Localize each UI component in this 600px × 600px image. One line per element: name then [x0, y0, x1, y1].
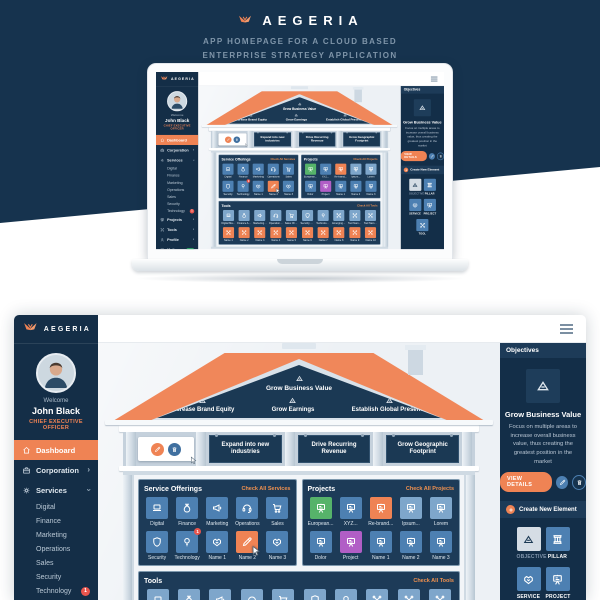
dashboard: AEGERIAWelcomeJohn BlackCHIEF EXECUTIVE … [156, 72, 444, 249]
tile-label: Name 1 [221, 239, 235, 242]
create-element-pillar[interactable]: PILLAR [546, 527, 570, 560]
sidebar-subitem-security[interactable]: Security [14, 570, 98, 584]
welcome-text: Welcome [18, 398, 94, 404]
sidebar-subitem-sales[interactable]: Sales [156, 193, 198, 200]
element-label: PILLAR [424, 193, 436, 196]
services-check-all-link[interactable]: Check All Services [241, 486, 290, 492]
pillar-row: Increase Brand EquityGrow EarningsEstabl… [171, 396, 427, 413]
projects-tile-european[interactable] [305, 164, 316, 175]
services-item: Security [144, 531, 170, 561]
board-icon [307, 183, 313, 189]
tools-tile-marketing-analytics[interactable] [254, 210, 265, 221]
sidebar-subitem-digital[interactable]: Digital [156, 165, 198, 172]
strategy-sign-grow-geographic-footprint[interactable]: Grow Geographic Footprint [343, 132, 380, 146]
pillar-label: Grow Earnings [286, 118, 307, 121]
services-panel: Service OfferingsCheck All ServicesDigit… [218, 155, 298, 199]
create-element-service[interactable]: SERVICE [409, 199, 421, 216]
services-tile-digital[interactable] [146, 497, 168, 519]
board-icon [345, 502, 357, 514]
pillar-label: Grow Earnings [272, 407, 315, 413]
delete-objective-button[interactable] [572, 475, 586, 490]
headset-icon [246, 594, 258, 600]
projects-item: XYZ... [319, 164, 332, 179]
services-tile-technology[interactable]: 1 [176, 531, 198, 553]
projects-grid: European...XYZ...Re-brand...Ipsum...Lore… [304, 164, 378, 196]
tools-panel-header: ToolsCheck All Tools [221, 203, 377, 208]
sidebar-item-corporation[interactable]: Corporation› [14, 460, 98, 480]
cart-icon [289, 212, 295, 218]
tile-label: Finance [174, 521, 200, 527]
services-tile-name-2[interactable] [268, 181, 279, 192]
delete-objective-button[interactable] [437, 153, 444, 161]
tools-tile-name-10[interactable] [365, 227, 376, 238]
tools-item: Name 9 [348, 227, 362, 242]
laptop-icon [152, 594, 164, 600]
element-label: PILLAR [546, 554, 570, 560]
tools-tile-name-1[interactable] [223, 227, 234, 238]
column [382, 131, 387, 148]
laptop-mockup: AEGERIAWelcomeJohn BlackCHIEF EXECUTIVE … [132, 63, 468, 283]
tools-icon [434, 594, 446, 600]
sidebar: AEGERIAWelcomeJohn BlackCHIEF EXECUTIVE … [156, 72, 198, 249]
services-item: Marketing [204, 497, 230, 527]
tools-tile-tool-name-1[interactable] [398, 589, 420, 600]
services-tile-operations[interactable] [236, 497, 258, 519]
pillar-grow-earnings[interactable]: Grow Earnings [272, 396, 315, 413]
projects-tile-re-brand[interactable] [335, 164, 346, 175]
menu-toggle[interactable] [560, 322, 573, 336]
tools-tile-security-physical[interactable] [302, 210, 313, 221]
tools-icon [241, 230, 247, 236]
projects-tile-dolor[interactable] [310, 531, 332, 553]
services-tile-finance[interactable] [176, 497, 198, 519]
tools-icon [352, 212, 358, 218]
tools-icon [403, 594, 415, 600]
projects-tile-xyz[interactable] [320, 164, 331, 175]
tools-item: Tool Name 2 [427, 589, 454, 600]
user-name: John Black [158, 118, 196, 123]
tools-tile-name-2[interactable] [239, 227, 250, 238]
tile-label: Security Physical [300, 222, 314, 225]
avatar[interactable] [36, 353, 76, 393]
create-new-element-label: Create New Element [410, 169, 439, 172]
projects-item: Name 3 [428, 531, 454, 561]
sidebar-subitem-finance[interactable]: Finance [156, 172, 198, 179]
delete-button[interactable] [168, 443, 181, 456]
sidebar-item-services[interactable]: Services› [156, 155, 198, 165]
roof: Grow Business ValueIncrease Brand Equity… [113, 347, 485, 425]
services-item: Digital [144, 497, 170, 527]
bulb-icon [181, 536, 193, 548]
projects-check-all-link[interactable]: Check All Projects [406, 486, 454, 492]
board-icon [435, 502, 447, 514]
tools-tile-finance-accounting[interactable] [239, 210, 250, 221]
column [212, 131, 217, 148]
triangle-icon [294, 113, 299, 118]
sidebar-subitem-operations[interactable]: Operations [156, 186, 198, 193]
tools-tile-digital-marketing[interactable] [147, 589, 169, 600]
lower-floor: Service OfferingsCheck All ServicesDigit… [211, 151, 388, 249]
tools-tile-emerging-technology[interactable] [366, 589, 388, 600]
edit-objective-button[interactable] [556, 476, 568, 489]
gear-icon [22, 486, 31, 495]
design-presentation: AEGERIA APP HOMEPAGE FOR A CLOUD BASED E… [0, 0, 600, 600]
element-label: PROJECT [546, 594, 570, 600]
projects-tile-name-1[interactable] [370, 531, 392, 553]
chimney [354, 87, 362, 102]
projects-panel-title: Projects [304, 158, 318, 162]
sidebar-item-dashboard[interactable]: Dashboard [14, 440, 98, 460]
projects-tile-lorem[interactable] [430, 497, 452, 519]
tools-item: Marketing Analytics [207, 589, 234, 600]
services-panel-title: Service Offerings [221, 158, 250, 162]
sidebar-subitem-label: Security [36, 574, 61, 581]
person-icon [160, 237, 165, 242]
tools-tile-tool-name-2[interactable] [429, 589, 451, 600]
tile-label: Name 7 [316, 239, 330, 242]
projects-tile-ipsum[interactable] [350, 164, 361, 175]
projects-tile-dolor[interactable] [305, 181, 316, 192]
edit-objective-button[interactable] [429, 153, 435, 160]
user-title: CHIEF EXECUTIVE OFFICER [158, 124, 196, 130]
strategy-sign-grow-geographic-footprint[interactable]: Grow Geographic Footprint [386, 435, 459, 463]
board-icon [345, 536, 357, 548]
tools-icon [336, 212, 342, 218]
handshake-icon [271, 536, 283, 548]
services-item: Name 1 [252, 181, 265, 196]
element-label: OBJECTIVE [409, 193, 421, 196]
element-tile [424, 179, 436, 191]
services-tile-finance[interactable] [238, 164, 249, 175]
pillar-label: Establish Global Presence [352, 407, 427, 413]
pencil-icon [226, 138, 230, 142]
projects-item: Ipsum... [349, 164, 362, 179]
view-details-button[interactable]: VIEW DETAILS [500, 472, 552, 492]
services-tile-name-3[interactable] [283, 181, 294, 192]
element-tile [546, 567, 570, 591]
sidebar-subitem-security[interactable]: Security [156, 200, 198, 207]
tile-label: Name 8 [332, 239, 346, 242]
pillar-row: Increase Brand EquityGrow EarningsEstabl… [235, 113, 364, 122]
tile-label: European... [308, 521, 334, 527]
tools-tile-sales-channel[interactable] [286, 210, 297, 221]
tools-tile-finance-accounting[interactable] [178, 589, 200, 600]
plus-icon [404, 169, 407, 172]
services-panel-header: Service OfferingsCheck All Services [144, 484, 291, 494]
tools-tile-name-6[interactable] [302, 227, 313, 238]
sidebar-item-projects[interactable]: Projects› [156, 214, 198, 224]
projects-tile-project[interactable] [320, 181, 331, 192]
column-icon [551, 533, 564, 546]
column [126, 432, 136, 466]
services-tile-name-3[interactable] [266, 531, 288, 553]
services-panel: Service OfferingsCheck All ServicesDigit… [138, 479, 297, 566]
tools-item: Name 3 [253, 227, 267, 242]
bulb-icon [240, 183, 246, 189]
projects-tile-name-2[interactable] [400, 531, 422, 553]
tools-tile-tool-name-2[interactable] [365, 210, 376, 221]
sidebar-item-corporation[interactable]: Corporation› [156, 145, 198, 155]
projects-item: Name 2 [398, 531, 424, 561]
tile-label: Operations Facilities [269, 222, 283, 225]
triangle-icon [522, 533, 535, 546]
tools-tile-tool-name-1[interactable] [349, 210, 360, 221]
projects-item: Ipsum... [398, 497, 424, 527]
top-bar [198, 72, 444, 86]
tools-icon [419, 222, 426, 229]
tools-tile-name-4[interactable] [270, 227, 281, 238]
create-new-element-button[interactable]: Create New Element [401, 166, 444, 175]
projects-tile-name-1[interactable] [335, 181, 346, 192]
services-item: Finance [174, 497, 200, 527]
create-element-objective[interactable]: OBJECTIVE [409, 179, 421, 196]
element-tile [424, 199, 436, 211]
tools-item: Emerging Technology [364, 589, 391, 600]
projects-check-all-link[interactable]: Check All Projects [353, 158, 377, 161]
services-tile-marketing[interactable] [206, 497, 228, 519]
services-item: 1Technology [237, 181, 250, 196]
sidebar-subitem-marketing[interactable]: Marketing [14, 528, 98, 542]
top-bar [98, 315, 586, 343]
tools-item: Operations Facilities [269, 210, 283, 225]
home-icon [22, 446, 31, 455]
sidebar-item-label: Dashboard [167, 138, 187, 143]
element-label: TOOL [416, 233, 428, 236]
trash-icon [576, 479, 583, 486]
create-element-pillar[interactable]: PILLAR [424, 179, 436, 196]
sidebar-subitem-label: Operations [36, 546, 70, 553]
tools-tile-operations-facilities[interactable] [241, 589, 263, 600]
create-element-objective[interactable]: OBJECTIVE [517, 527, 541, 560]
tools-icon [352, 230, 358, 236]
element-tile [517, 567, 541, 591]
moneybag-icon [181, 502, 193, 514]
board-icon [375, 536, 387, 548]
tile-label: Tool Name 2 [364, 222, 378, 225]
sidebar-subitem-technology[interactable]: Technology1 [156, 207, 198, 214]
services-tile-sales[interactable] [283, 164, 294, 175]
notification-badge: 1 [194, 528, 201, 535]
sidebar-item-tools[interactable]: Tools› [156, 225, 198, 235]
sidebar-subitem-marketing[interactable]: Marketing [156, 179, 198, 186]
objective-name: Grow Business Value [500, 410, 586, 419]
cart-icon [271, 502, 283, 514]
sidebar-item-label: Corporation [36, 466, 79, 475]
services-tile-technology[interactable]: 1 [238, 181, 249, 192]
tools-panel: ToolsCheck All ToolsDigital MarketingFin… [138, 571, 460, 600]
services-tile-marketing[interactable] [253, 164, 264, 175]
tools-icon [368, 212, 374, 218]
handshake-icon [522, 573, 535, 586]
create-new-element-button[interactable]: Create New Element [500, 501, 586, 518]
projects-tile-name-2[interactable] [350, 181, 361, 192]
tile-label: Name 6 [300, 239, 314, 242]
app-card: AEGERIAWelcomeJohn BlackCHIEF EXECUTIVE … [14, 315, 586, 600]
tools-item: Emerging Technology [332, 210, 346, 225]
strategy-sign-drive-recurring-revenue[interactable]: Drive Recurring Revenue [298, 435, 371, 463]
projects-tile-lorem[interactable] [365, 164, 376, 175]
triangle-icon [535, 378, 551, 394]
column-icon [426, 182, 433, 189]
board-icon [160, 217, 165, 222]
services-tile-name-2[interactable] [236, 531, 258, 553]
projects-tile-project[interactable] [340, 531, 362, 553]
tools-tile-name-3[interactable] [254, 227, 265, 238]
tile-label: Sales [264, 521, 290, 527]
element-label: OBJECTIVE [517, 554, 541, 560]
roof-fascia [105, 420, 493, 425]
tools-icon [320, 230, 326, 236]
column [292, 131, 297, 148]
upper-floor: Expand into new industriesDrive Recurrin… [211, 131, 388, 148]
cart-icon [286, 166, 292, 172]
chevron-right-icon: › [193, 238, 194, 242]
entablature-beam [119, 425, 479, 432]
services-tile-sales[interactable] [266, 497, 288, 519]
menu-toggle[interactable] [431, 75, 438, 82]
home-icon [160, 138, 165, 143]
tools-panel-header: ToolsCheck All Tools [144, 576, 454, 586]
cursor-icon [244, 143, 249, 148]
tools-tile-name-8[interactable] [333, 227, 344, 238]
projects-tile-name-3[interactable] [430, 531, 452, 553]
create-element-project[interactable]: PROJECT [546, 567, 570, 600]
column [123, 475, 132, 600]
sidebar-item-profile[interactable]: Profile› [156, 235, 198, 245]
laptop-icon [225, 212, 231, 218]
sidebar-subitem-operations[interactable]: Operations [14, 542, 98, 556]
tools-item: Marketing Analytics [253, 210, 267, 225]
sidebar-subitem-finance[interactable]: Finance [14, 514, 98, 528]
pillar-grow-earnings[interactable]: Grow Earnings [286, 113, 307, 122]
projects-item: Name 2 [349, 181, 362, 196]
edit-button[interactable] [225, 136, 232, 143]
services-tile-digital[interactable] [222, 164, 233, 175]
tools-tile-marketing-analytics[interactable] [209, 589, 231, 600]
roof-ridge-cap [282, 343, 316, 349]
services-panel-title: Service Offerings [144, 486, 202, 493]
projects-tile-xyz[interactable] [340, 497, 362, 519]
trash-icon [235, 138, 239, 142]
board-icon [375, 502, 387, 514]
projects-tile-re-brand[interactable] [370, 497, 392, 519]
tile-label: Digital [144, 521, 170, 527]
projects-tile-ipsum[interactable] [400, 497, 422, 519]
cursor-icon [250, 545, 262, 557]
tools-tile-technology-design[interactable] [335, 589, 357, 600]
handshake-icon [286, 183, 292, 189]
services-item: Operations [234, 497, 260, 527]
sidebar-item-dashboard[interactable]: Dashboard [156, 135, 198, 145]
tools-tile-name-7[interactable] [318, 227, 329, 238]
services-tile-security[interactable] [146, 531, 168, 553]
tile-label: Ipsum... [349, 176, 362, 179]
sidebar-subitem-technology[interactable]: Technology1 [14, 584, 98, 598]
tools-check-all-link[interactable]: Check All Tools [357, 204, 377, 207]
tools-tile-emerging-technology[interactable] [333, 210, 344, 221]
strategy-sign-drive-recurring-revenue[interactable]: Drive Recurring Revenue [299, 132, 336, 146]
projects-tile-name-3[interactable] [365, 181, 376, 192]
tools-tile-operations-facilities[interactable] [270, 210, 281, 221]
roof-objective-label: Grow Business Value [283, 107, 316, 111]
pencil-icon [154, 446, 161, 453]
projects-tile-european[interactable] [310, 497, 332, 519]
tools-tile-name-9[interactable] [349, 227, 360, 238]
tile-label: Project [319, 193, 332, 196]
tools-item: Operations Facilities [238, 589, 265, 600]
services-tile-name-1[interactable] [206, 531, 228, 553]
delete-button[interactable] [234, 136, 241, 143]
create-element-service[interactable]: SERVICE [517, 567, 541, 600]
services-tile-security[interactable] [222, 181, 233, 192]
tools-item: Name 5 [285, 227, 299, 242]
tools-grid: Digital MarketingFinance AccountingMarke… [144, 589, 454, 600]
shield-icon [309, 594, 321, 600]
projects-panel: ProjectsCheck All ProjectsEuropean...XYZ… [302, 479, 461, 566]
tools-item: Name 7 [316, 227, 330, 242]
sidebar-item-mail[interactable]: Mail [156, 245, 198, 250]
services-item: Finance [237, 164, 250, 179]
sidebar-subitem-label: Marketing [167, 181, 182, 185]
services-tile-operations[interactable] [268, 164, 279, 175]
tile-label: Dolor [304, 193, 317, 196]
tools-item: Sales Channel [270, 589, 297, 600]
sidebar-subitem-digital[interactable]: Digital [14, 500, 98, 514]
tile-label: Digital [221, 176, 234, 179]
edit-button[interactable] [151, 443, 164, 456]
strategy-sign-expand-into-new-industries[interactable]: Expand into new industries [209, 435, 282, 463]
tools-item: Name 8 [332, 227, 346, 242]
triangle-icon [418, 104, 426, 112]
tools-icon [257, 230, 263, 236]
projects-panel-header: ProjectsCheck All Projects [304, 157, 378, 162]
sidebar-item-services[interactable]: Services› [14, 480, 98, 500]
strategy-sign-expand-into-new-industries[interactable]: Expand into new industries [254, 132, 291, 146]
headset-icon [241, 502, 253, 514]
shield-icon [304, 212, 310, 218]
sidebar-subitem-sales[interactable]: Sales [14, 556, 98, 570]
create-element-tool[interactable]: TOOL [416, 219, 428, 236]
tools-item: Name 4 [269, 227, 283, 242]
view-details-button[interactable]: VIEW DETAILS [401, 151, 427, 161]
services-tile-name-1[interactable] [253, 181, 264, 192]
board-icon [315, 502, 327, 514]
projects-item: European... [308, 497, 334, 527]
tools-icon [304, 230, 310, 236]
tools-icon [371, 594, 383, 600]
tools-tile-sales-channel[interactable] [272, 589, 294, 600]
tools-icon [160, 227, 165, 232]
create-element-project[interactable]: PROJECT [424, 199, 436, 216]
avatar[interactable] [167, 91, 187, 111]
tools-tile-name-5[interactable] [286, 227, 297, 238]
services-check-all-link[interactable]: Check All Services [271, 158, 296, 161]
services-item: Name 3 [264, 531, 290, 561]
bulb-icon [320, 212, 326, 218]
tools-tile-technology-design[interactable] [318, 210, 329, 221]
element-label: SERVICE [517, 594, 541, 600]
objective-icon-tile [414, 99, 431, 116]
tools-item: Digital Marketing [221, 210, 235, 225]
tools-tile-digital-marketing[interactable] [223, 210, 234, 221]
tools-tile-security-physical[interactable] [304, 589, 326, 600]
cursor-icon [189, 456, 198, 465]
tools-check-all-link[interactable]: Check All Tools [413, 578, 454, 584]
tile-label: European... [304, 176, 317, 179]
sidebar-item-label: Profile [167, 237, 179, 242]
megaphone-icon [214, 594, 226, 600]
board-icon [368, 166, 374, 172]
